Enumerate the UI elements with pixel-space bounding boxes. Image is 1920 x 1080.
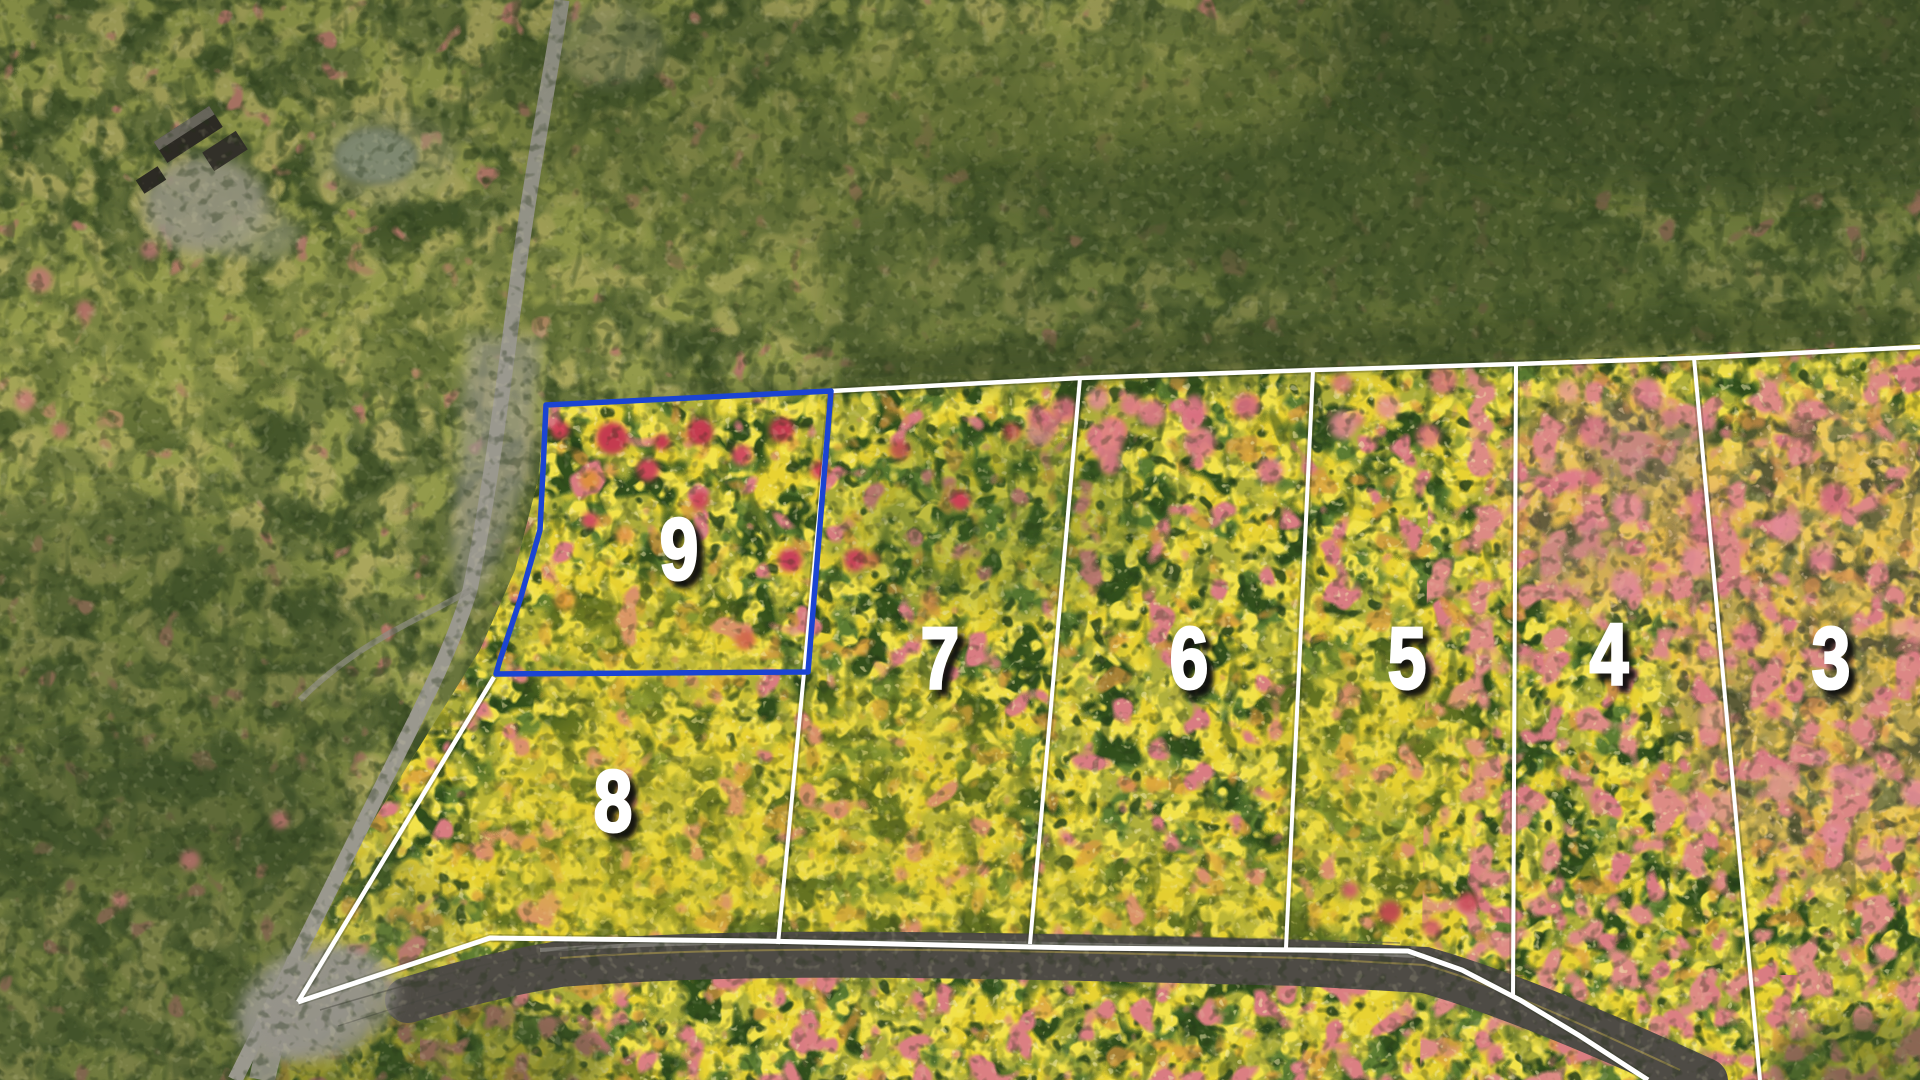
svg-text:9: 9 bbox=[660, 501, 699, 598]
svg-text:7: 7 bbox=[921, 610, 960, 707]
svg-text:8: 8 bbox=[594, 753, 633, 850]
svg-text:3: 3 bbox=[1812, 610, 1851, 707]
svg-text:6: 6 bbox=[1170, 610, 1209, 707]
svg-text:5: 5 bbox=[1388, 610, 1427, 707]
svg-text:4: 4 bbox=[1590, 606, 1629, 703]
